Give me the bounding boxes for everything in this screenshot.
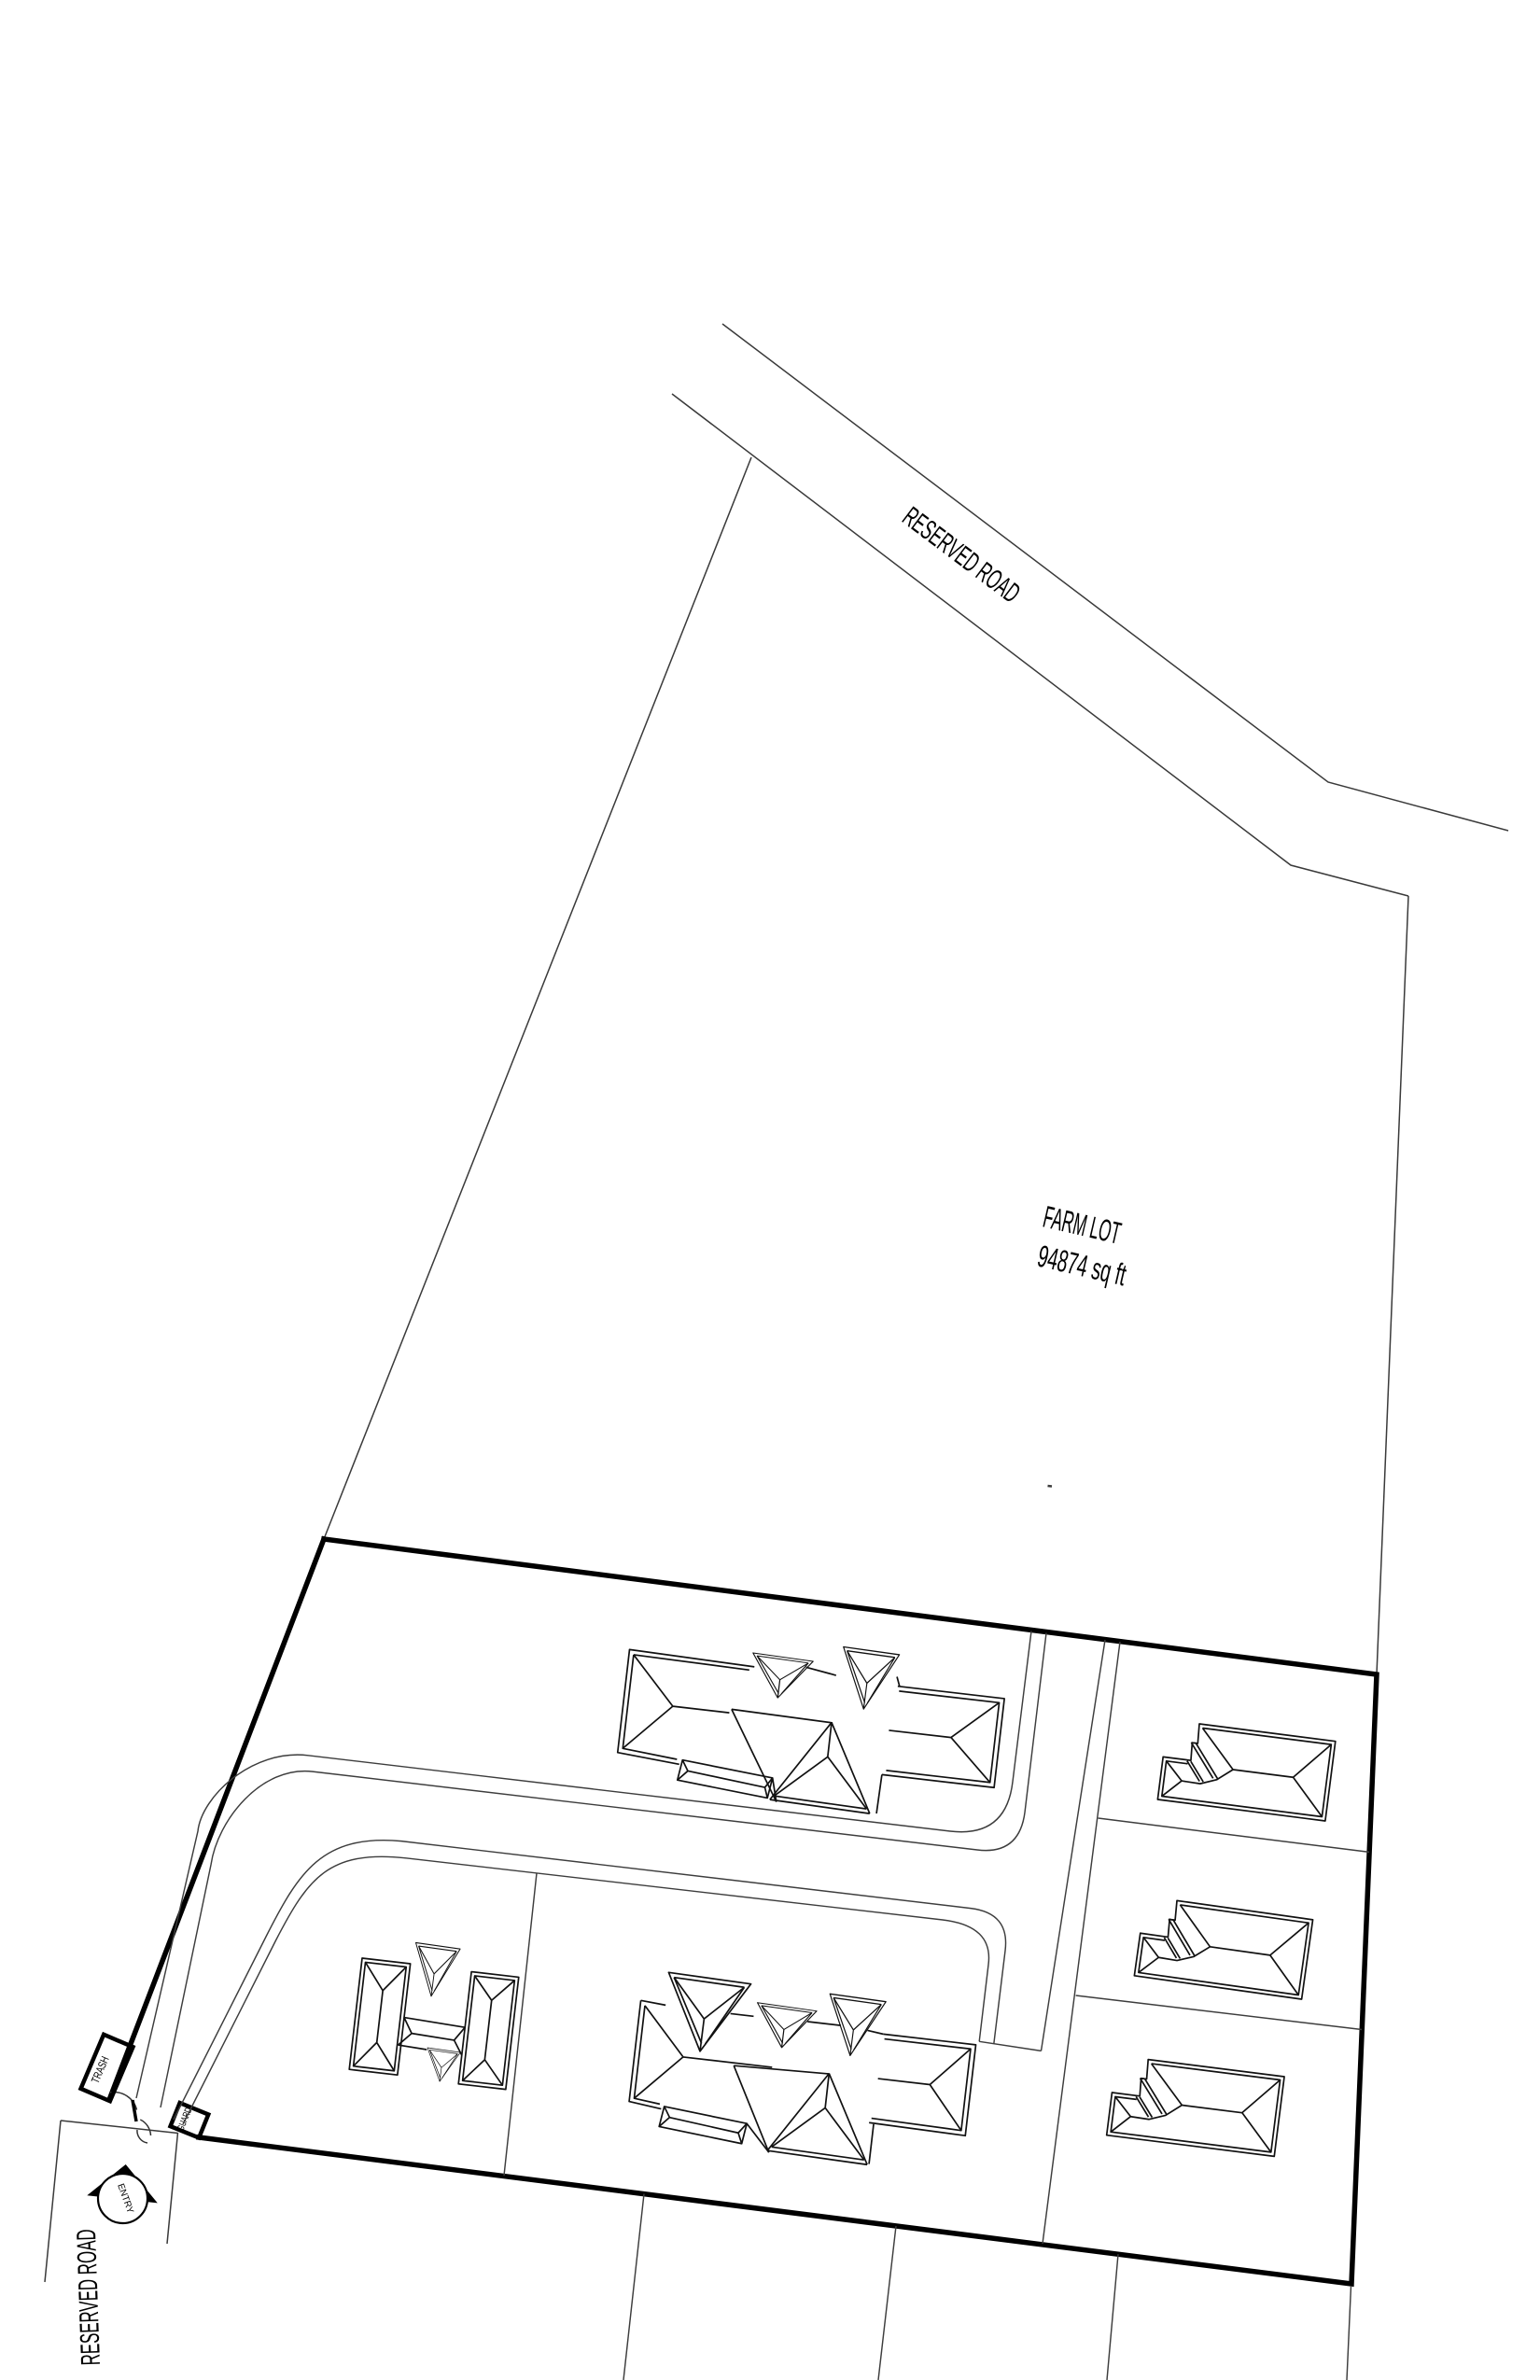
svg-text:RESERVED ROAD: RESERVED ROAD [72, 2229, 106, 2366]
